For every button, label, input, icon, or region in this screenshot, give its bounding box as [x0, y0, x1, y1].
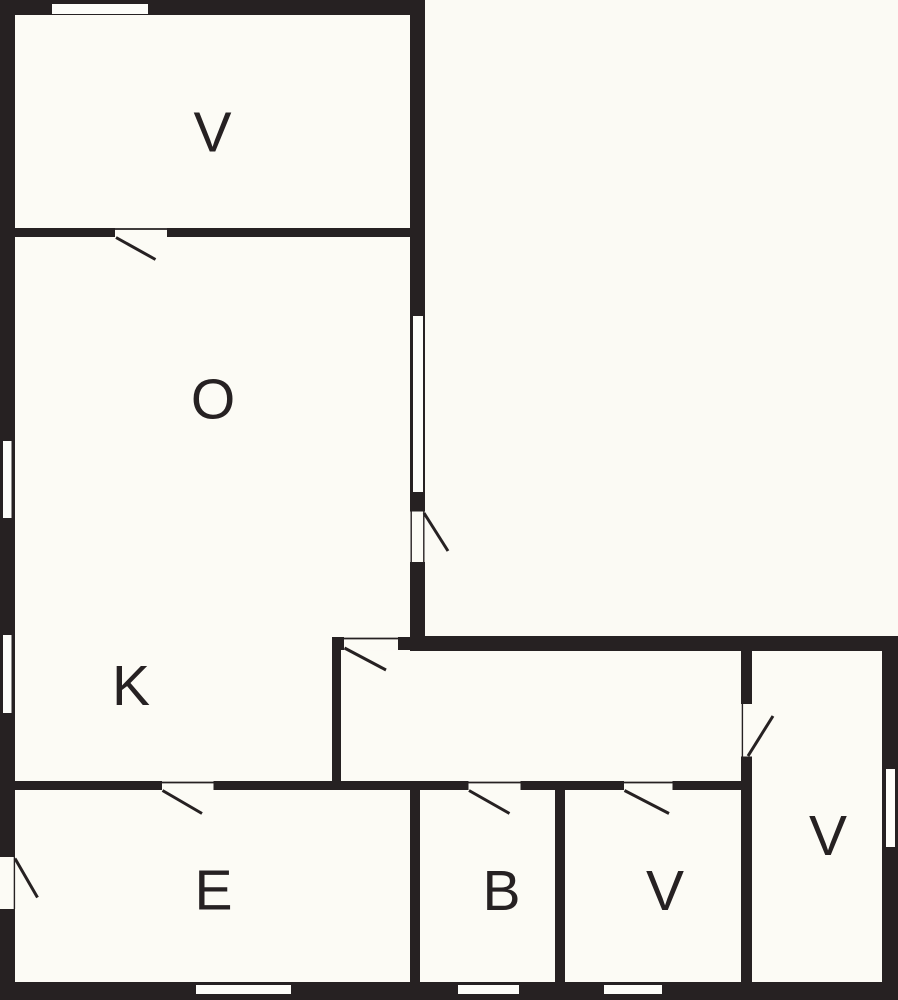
svg-text:E: E	[194, 859, 232, 923]
svg-text:V: V	[809, 804, 847, 868]
svg-text:V: V	[193, 101, 231, 165]
svg-text:K: K	[112, 654, 150, 718]
svg-text:V: V	[646, 859, 684, 923]
svg-text:O: O	[191, 368, 235, 432]
svg-text:B: B	[482, 859, 520, 923]
